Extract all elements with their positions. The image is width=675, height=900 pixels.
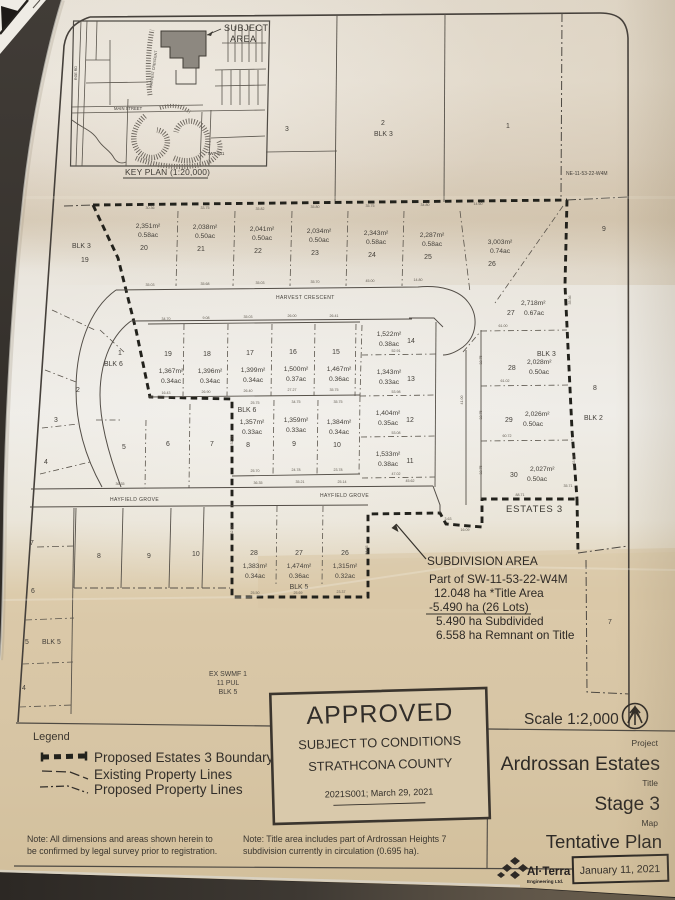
svg-text:Proposed Estates 3 Boundary: Proposed Estates 3 Boundary: [94, 750, 274, 765]
svg-text:HARVEST CRESCENT: HARVEST CRESCENT: [276, 295, 335, 301]
svg-text:35.71: 35.71: [564, 484, 573, 488]
svg-text:1,359m²: 1,359m²: [284, 417, 309, 424]
svg-text:NE-11-53-22-W4M: NE-11-53-22-W4M: [566, 171, 608, 177]
svg-text:34.75: 34.75: [292, 400, 301, 404]
svg-text:BLK 3: BLK 3: [374, 131, 393, 138]
svg-text:6: 6: [166, 441, 170, 448]
svg-text:35.75: 35.75: [330, 388, 339, 392]
svg-text:26.00: 26.00: [288, 314, 297, 318]
svg-text:0.67ac: 0.67ac: [524, 310, 545, 317]
svg-text:0.50ac: 0.50ac: [195, 233, 216, 240]
svg-text:21: 21: [197, 246, 205, 253]
svg-text:0.38ac: 0.38ac: [378, 461, 399, 468]
svg-text:1,474m²: 1,474m²: [287, 563, 312, 570]
svg-text:0.34ac: 0.34ac: [161, 378, 182, 385]
svg-text:2,034m²: 2,034m²: [307, 228, 332, 235]
svg-text:Note: All dimensions and areas: Note: All dimensions and areas shown her…: [27, 834, 213, 844]
svg-text:2,041m²: 2,041m²: [250, 226, 275, 233]
svg-text:MAIN STREET: MAIN STREET: [114, 106, 143, 111]
svg-text:28: 28: [250, 550, 258, 557]
svg-text:35.75: 35.75: [334, 400, 343, 404]
svg-text:be confirmed by legal survey p: be confirmed by legal survey prior to re…: [27, 846, 217, 856]
svg-text:BLK 6: BLK 6: [104, 361, 123, 368]
svg-text:10: 10: [333, 442, 341, 449]
svg-text:1,343m²: 1,343m²: [377, 369, 402, 376]
svg-text:5: 5: [25, 639, 29, 646]
svg-text:subdivision currently in circu: subdivision currently in circulation (0.…: [243, 846, 419, 856]
svg-text:17: 17: [246, 350, 254, 357]
svg-text:8: 8: [97, 553, 101, 560]
svg-text:2,343m²: 2,343m²: [364, 230, 389, 237]
svg-text:2,038m²: 2,038m²: [193, 224, 218, 231]
svg-text:1,396m²: 1,396m²: [198, 368, 223, 375]
svg-text:Engineering Ltd.: Engineering Ltd.: [527, 879, 563, 884]
svg-text:9.08: 9.08: [203, 316, 210, 320]
svg-text:26: 26: [488, 261, 496, 268]
svg-text:APPROVED: APPROVED: [306, 698, 454, 730]
svg-text:7: 7: [30, 540, 34, 547]
svg-text:25.70: 25.70: [251, 469, 260, 473]
svg-text:26.40: 26.40: [244, 389, 253, 393]
svg-text:35.70: 35.70: [311, 280, 320, 284]
svg-text:1,367m²: 1,367m²: [159, 368, 184, 375]
svg-text:5.490 ha Subdivided: 5.490 ha Subdivided: [436, 614, 544, 628]
svg-text:HAYFIELD GROVE: HAYFIELD GROVE: [320, 493, 369, 499]
svg-text:4: 4: [44, 459, 48, 466]
svg-text:Note: Title area includes part: Note: Title area includes part of Ardros…: [243, 834, 447, 844]
svg-text:TWP 531: TWP 531: [207, 151, 225, 156]
svg-text:25.75: 25.75: [251, 401, 260, 405]
svg-text:52.91: 52.91: [392, 349, 401, 353]
svg-text:ESTATES 3: ESTATES 3: [506, 504, 563, 515]
svg-text:35.03: 35.03: [256, 281, 265, 285]
svg-text:16.09: 16.09: [461, 528, 470, 532]
svg-text:9: 9: [602, 226, 606, 233]
svg-text:23.78: 23.78: [334, 468, 343, 472]
svg-text:19: 19: [81, 257, 89, 264]
svg-text:35.21: 35.21: [296, 480, 305, 484]
svg-text:16: 16: [289, 349, 297, 356]
svg-text:-5.490 ha (26 Lots): -5.490 ha (26 Lots): [429, 600, 529, 614]
svg-text:HAYFIELD GROVE: HAYFIELD GROVE: [110, 497, 159, 503]
svg-text:15: 15: [332, 349, 340, 356]
svg-text:0.34ac: 0.34ac: [243, 377, 264, 384]
svg-text:3: 3: [54, 417, 58, 424]
svg-text:12: 12: [406, 417, 414, 424]
svg-text:BLK 6: BLK 6: [238, 407, 257, 414]
svg-text:0.36ac: 0.36ac: [329, 376, 350, 383]
svg-text:0.50ac: 0.50ac: [252, 235, 273, 242]
svg-text:30.36: 30.36: [146, 206, 155, 210]
svg-text:53.08: 53.08: [392, 431, 401, 435]
svg-text:Legend: Legend: [33, 731, 70, 743]
svg-text:0.34ac: 0.34ac: [200, 378, 221, 385]
svg-text:11 PUL: 11 PUL: [217, 680, 240, 687]
svg-text:1,522m²: 1,522m²: [377, 331, 402, 338]
svg-text:0.35ac: 0.35ac: [378, 420, 399, 427]
svg-text:1,404m²: 1,404m²: [376, 410, 401, 417]
svg-text:13: 13: [407, 376, 415, 383]
svg-text:0.50ac: 0.50ac: [523, 421, 544, 428]
svg-text:0.36ac: 0.36ac: [289, 573, 310, 580]
svg-text:19: 19: [164, 351, 172, 358]
svg-text:35.68: 35.68: [201, 282, 210, 286]
svg-text:0.58ac: 0.58ac: [138, 232, 159, 239]
svg-text:AREA: AREA: [230, 34, 257, 44]
svg-text:1,357m²: 1,357m²: [240, 419, 265, 426]
svg-text:0.50ac: 0.50ac: [527, 476, 548, 483]
svg-text:Proposed Property Lines: Proposed Property Lines: [94, 782, 243, 797]
svg-text:Al·Terra: Al·Terra: [527, 866, 571, 878]
svg-text:9: 9: [292, 441, 296, 448]
svg-text:28: 28: [508, 365, 516, 372]
svg-text:30: 30: [510, 472, 518, 479]
svg-text:23: 23: [311, 250, 319, 257]
svg-text:32.75: 32.75: [479, 411, 483, 420]
svg-text:1,383m²: 1,383m²: [243, 563, 268, 570]
svg-text:35.82: 35.82: [256, 207, 265, 211]
svg-text:6: 6: [31, 588, 35, 595]
svg-text:0.33ac: 0.33ac: [379, 379, 400, 386]
svg-text:27: 27: [507, 310, 515, 317]
svg-text:3.63: 3.63: [445, 517, 452, 521]
svg-text:24.78: 24.78: [292, 468, 301, 472]
svg-text:0.37ac: 0.37ac: [286, 376, 307, 383]
svg-text:14: 14: [407, 338, 415, 345]
svg-text:KEY PLAN (1:20,000): KEY PLAN (1:20,000): [125, 167, 210, 177]
svg-text:Part of SW-11-53-22-W4M: Part of SW-11-53-22-W4M: [429, 572, 568, 586]
svg-text:35.36: 35.36: [568, 296, 572, 305]
svg-text:61.00: 61.00: [499, 324, 508, 328]
svg-text:51.85: 51.85: [365, 546, 369, 555]
svg-text:88.71: 88.71: [516, 493, 525, 497]
svg-text:Scale 1:2,000: Scale 1:2,000: [524, 711, 619, 728]
svg-text:41.00: 41.00: [460, 396, 464, 405]
svg-text:0.50ac: 0.50ac: [309, 237, 330, 244]
svg-text:1,467m²: 1,467m²: [327, 366, 352, 373]
svg-text:25: 25: [424, 254, 432, 261]
svg-text:RGE RD: RGE RD: [74, 66, 78, 80]
svg-text:35.03: 35.03: [146, 283, 155, 287]
svg-text:1: 1: [118, 350, 122, 357]
svg-text:61.02: 61.02: [501, 379, 510, 383]
svg-text:52.91: 52.91: [230, 436, 234, 445]
svg-text:12.048 ha *Title Area: 12.048 ha *Title Area: [434, 586, 544, 600]
svg-text:36.35: 36.35: [116, 482, 125, 486]
svg-text:14.80: 14.80: [414, 278, 423, 282]
svg-text:27.27: 27.27: [288, 388, 297, 392]
svg-text:26.90: 26.90: [202, 390, 211, 394]
svg-text:24: 24: [368, 252, 376, 259]
svg-text:BLK 5: BLK 5: [219, 689, 238, 696]
svg-text:1,399m²: 1,399m²: [241, 367, 266, 374]
svg-text:2,718m²: 2,718m²: [521, 300, 546, 307]
svg-text:18: 18: [203, 351, 211, 358]
svg-text:2,026m²: 2,026m²: [525, 411, 550, 418]
svg-text:1,315m²: 1,315m²: [333, 563, 358, 570]
svg-text:8: 8: [593, 385, 597, 392]
svg-text:2: 2: [76, 387, 80, 394]
svg-text:53.98: 53.98: [392, 390, 401, 394]
svg-text:45.00: 45.00: [366, 279, 375, 283]
svg-text:14.60: 14.60: [474, 202, 483, 206]
svg-text:33.75: 33.75: [201, 206, 210, 210]
svg-text:0.34ac: 0.34ac: [329, 429, 350, 436]
svg-text:5: 5: [122, 444, 126, 451]
svg-text:10: 10: [192, 551, 200, 558]
svg-text:2,351m²: 2,351m²: [136, 223, 161, 230]
svg-text:60.72: 60.72: [503, 434, 512, 438]
svg-text:7: 7: [608, 619, 612, 626]
svg-text:32.75: 32.75: [479, 466, 483, 475]
svg-text:0.74ac: 0.74ac: [490, 248, 511, 255]
svg-text:SUBJECT: SUBJECT: [224, 23, 269, 33]
svg-text:29: 29: [505, 417, 513, 424]
svg-text:0.32ac: 0.32ac: [335, 573, 356, 580]
svg-text:EX SWMF 1: EX SWMF 1: [209, 671, 247, 678]
svg-text:16.43: 16.43: [162, 391, 171, 395]
svg-text:0.58ac: 0.58ac: [366, 239, 387, 246]
svg-text:36.35: 36.35: [254, 481, 263, 485]
svg-text:BLK 5: BLK 5: [42, 639, 61, 646]
svg-text:2,028m²: 2,028m²: [527, 359, 552, 366]
svg-text:2: 2: [381, 120, 385, 127]
svg-text:34.70: 34.70: [162, 317, 171, 321]
svg-text:1,384m²: 1,384m²: [327, 419, 352, 426]
svg-text:2,027m²: 2,027m²: [530, 466, 555, 473]
svg-text:35.80: 35.80: [311, 205, 320, 209]
svg-text:35.03: 35.03: [244, 315, 253, 319]
svg-text:BLK 3: BLK 3: [72, 243, 91, 250]
svg-text:1,500m²: 1,500m²: [284, 366, 309, 373]
svg-text:27: 27: [295, 550, 303, 557]
svg-text:23.37: 23.37: [337, 590, 346, 594]
svg-text:26: 26: [341, 550, 349, 557]
svg-text:0.33ac: 0.33ac: [242, 429, 263, 436]
svg-text:34.80: 34.80: [421, 203, 430, 207]
svg-text:BLK 2: BLK 2: [584, 415, 603, 422]
svg-text:7: 7: [210, 441, 214, 448]
svg-text:26.41: 26.41: [330, 314, 339, 318]
svg-text:35.75: 35.75: [366, 204, 375, 208]
svg-text:1,533m²: 1,533m²: [376, 451, 401, 458]
svg-text:3: 3: [285, 126, 289, 133]
svg-text:6.558 ha Remnant on Title: 6.558 ha Remnant on Title: [436, 628, 575, 642]
svg-text:BLK 3: BLK 3: [537, 351, 556, 358]
svg-text:25.14: 25.14: [338, 480, 347, 484]
svg-text:0.50ac: 0.50ac: [529, 369, 550, 376]
svg-text:0.33ac: 0.33ac: [286, 427, 307, 434]
svg-text:82.50: 82.50: [230, 526, 234, 535]
svg-text:25.69: 25.69: [294, 591, 303, 595]
svg-text:47.02: 47.02: [392, 472, 401, 476]
svg-text:0.34ac: 0.34ac: [245, 573, 266, 580]
svg-text:Existing Property Lines: Existing Property Lines: [94, 767, 232, 782]
svg-text:11: 11: [406, 458, 413, 465]
svg-text:22: 22: [254, 248, 262, 255]
svg-text:32.75: 32.75: [479, 356, 483, 365]
svg-text:1: 1: [506, 123, 510, 130]
svg-text:4: 4: [22, 685, 26, 692]
svg-text:0.38ac: 0.38ac: [379, 341, 400, 348]
svg-text:3,003m²: 3,003m²: [488, 239, 513, 246]
svg-text:0.58ac: 0.58ac: [422, 241, 443, 248]
svg-text:33.75: 33.75: [572, 456, 576, 465]
svg-text:9: 9: [147, 553, 151, 560]
svg-text:45.62: 45.62: [406, 479, 415, 483]
svg-text:2,287m²: 2,287m²: [420, 232, 445, 239]
svg-text:25.50: 25.50: [251, 591, 260, 595]
svg-text:20: 20: [140, 245, 148, 252]
svg-text:8: 8: [246, 442, 250, 449]
